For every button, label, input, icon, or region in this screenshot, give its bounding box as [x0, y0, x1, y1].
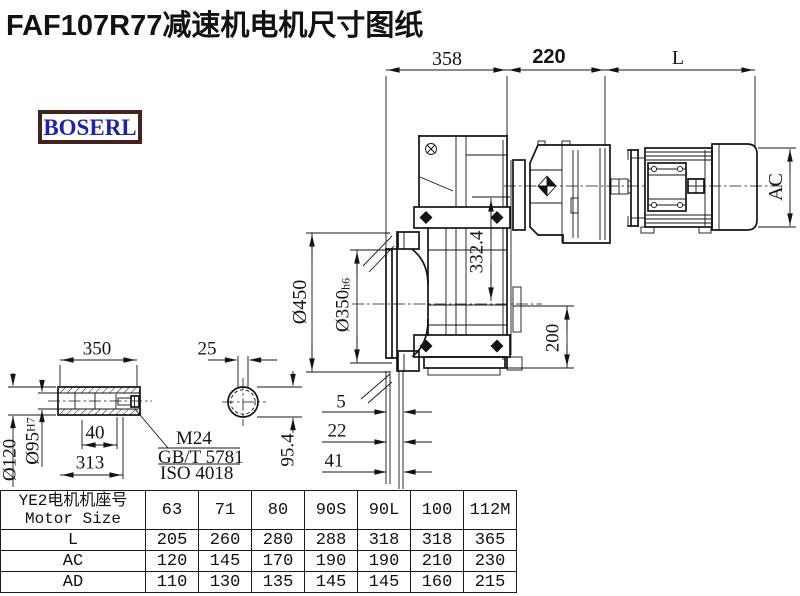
table-header-en: Motor Size: [1, 510, 145, 528]
flange-view: [361, 232, 428, 489]
dim-220-label: 220: [532, 47, 565, 67]
table-cell: 288: [305, 530, 358, 551]
table-header-cell: 90L: [358, 491, 411, 530]
table-cell: 160: [411, 572, 464, 593]
table-cell: 145: [305, 572, 358, 593]
table-header-row: YE2电机机座号 Motor Size 63 71 80 90S 90L 100…: [1, 491, 517, 530]
dim-313-label: 313: [76, 454, 105, 473]
table-row-AC: AC 120 145 170 190 190 210 230: [1, 551, 517, 572]
table-row-label: AC: [1, 551, 146, 572]
dim-bore-label: Ø95H7: [24, 417, 43, 464]
table-row-L: L 205 260 280 288 318 318 365: [1, 530, 517, 551]
table-header-cell: 100: [411, 491, 464, 530]
table-cell: 145: [199, 551, 252, 572]
dim-AC-label: AC: [766, 173, 786, 201]
dim-332-label: 332.4: [468, 231, 487, 274]
table-cell: 190: [305, 551, 358, 572]
table-cell: 365: [464, 530, 517, 551]
dim-350-label: 350: [83, 340, 112, 359]
table-header-cn: YE2电机机座号: [1, 492, 145, 510]
table-cell: 205: [146, 530, 199, 551]
dim-flange-spigot-label: Ø350h6: [334, 278, 353, 332]
table-cell: 145: [358, 572, 411, 593]
dim-shaft-od-label: Ø120: [1, 439, 20, 481]
motor-size-table: YE2电机机座号 Motor Size 63 71 80 90S 90L 100…: [0, 490, 517, 593]
adapter-view: [513, 141, 631, 243]
dim-40-label: 40: [86, 424, 105, 443]
table-cell: 210: [411, 551, 464, 572]
table-cell: 190: [358, 551, 411, 572]
dim-5-label: 5: [336, 393, 346, 412]
table-cell: 318: [411, 530, 464, 551]
drawing-page: FAF107R77减速机电机尺寸图纸 BOSERL .h{stroke:#141…: [0, 0, 800, 596]
dim-358-label: 358: [432, 49, 462, 69]
dim-25-label: 25: [198, 340, 217, 359]
table-header-cell: 63: [146, 491, 199, 530]
dim-22-label: 22: [328, 422, 347, 441]
dim-L-label: L: [672, 48, 684, 68]
table-header-cell: 80: [252, 491, 305, 530]
table-cell: 215: [464, 572, 517, 593]
table-cell: 120: [146, 551, 199, 572]
table-cell: 280: [252, 530, 305, 551]
table-row-label: AD: [1, 572, 146, 593]
table-cell: 230: [464, 551, 517, 572]
table-cell: 110: [146, 572, 199, 593]
dim-954-label: 95.4: [279, 433, 298, 466]
table-cell: 170: [252, 551, 305, 572]
table-header-cell: YE2电机机座号 Motor Size: [1, 491, 146, 530]
table-row-AD: AD 110 130 135 145 145 160 215: [1, 572, 517, 593]
table-header-cell: 90S: [305, 491, 358, 530]
table-row-label: L: [1, 530, 146, 551]
bolt-thread-label: M24: [176, 429, 212, 448]
table-header-cell: 71: [199, 491, 252, 530]
table-cell: 135: [252, 572, 305, 593]
dim-200-label: 200: [544, 324, 563, 353]
table-header-cell: 112M: [464, 491, 517, 530]
bolt-std-iso-label: ISO 4018: [160, 464, 233, 483]
table-cell: 318: [358, 530, 411, 551]
dim-41-label: 41: [325, 452, 344, 471]
table-cell: 260: [199, 530, 252, 551]
shaft-end-view: [208, 356, 302, 433]
dim-flange-od-label: Ø450: [290, 280, 310, 324]
table-cell: 130: [199, 572, 252, 593]
